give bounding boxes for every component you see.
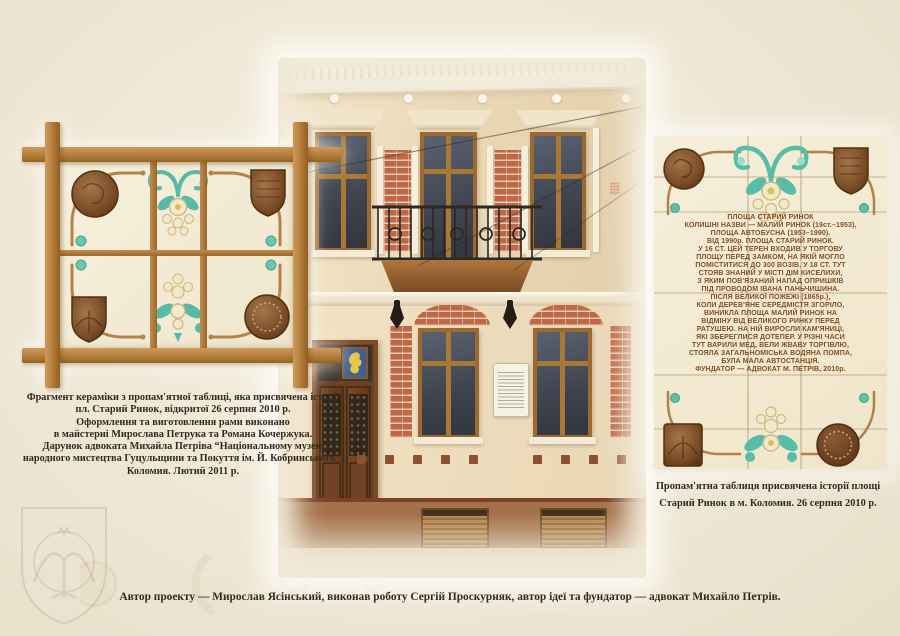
plaque-text-line: ПЛОЩА СТАРИЙ РИНОК — [658, 214, 883, 222]
caption-line: Старий Ринок в м. Коломия. 26 серпня 201… — [638, 496, 898, 513]
plaque-text-line: СТОЯЛА ЗАГАЛЬНОМІСЬКА ВОДЯНА ПОМПА, — [658, 350, 883, 358]
plaque-text-line: ВІДМІНУ ВІД ВЕЛИКОГО РИНКУ ПЕРЕД — [658, 318, 883, 326]
plaque-text-line: ФУНДАТОР — АДВОКАТ М. ПЕТРІВ, 2010р. — [658, 366, 883, 374]
plaque-text-line: ПЛОЩУ ПЕРЕД ЗАМКОМ, НА ЯКІЙ МОГЛО — [658, 254, 883, 262]
caption-line: Автор проекту — Мирослав Ясінський, вико… — [0, 590, 900, 604]
plaque-text-line: ТУТ ВАРИЛИ МЕД, ВЕЛИ ЖВАВУ ТОРГІВЛЮ, — [658, 342, 883, 350]
page: ПЛОЩА СТАРИЙ РИНОК КОЛИШНІ НАЗВИ — МАЛИЙ… — [0, 0, 900, 636]
caption-line: Коломия. Лютий 2011 р. — [16, 466, 350, 478]
plaque-text-block: ПЛОЩА СТАРИЙ РИНОК КОЛИШНІ НАЗВИ — МАЛИЙ… — [658, 214, 883, 374]
right-figure-caption: Пропам'ятна таблиця присвячена історії п… — [638, 479, 898, 512]
plaque-text-line: ВИНИКЛА ПЛОЩА МАЛИЙ РИНОК НА — [658, 310, 883, 318]
caption-line: Оформлення та виготовлення рами виконано — [16, 417, 350, 429]
memorial-plaque: ПЛОЩА СТАРИЙ РИНОК КОЛИШНІ НАЗВИ — МАЛИЙ… — [654, 136, 887, 469]
plaque-text-line: БУЛА МАЛА АВТОСТАНЦІЯ. — [658, 358, 883, 366]
plaque-text-line: СТОЯВ ЗНАНИЙ У МІСТІ ДІМ КИСЕЛИХИ, — [658, 270, 883, 278]
plaque-text-line: ПІД ПРОВОДОМ ІВАНА ПАНЬЧИШИНА. — [658, 286, 883, 294]
left-figure-caption: Фрагмент кераміки з пропам'ятної таблиці… — [16, 392, 350, 478]
caption-line: пл. Старий Ринок, відкритої 26 серпня 20… — [16, 404, 350, 416]
plaque-text-line: КОЛИШНІ НАЗВИ — МАЛИЙ РИНОК (19ст.–1953)… — [658, 222, 883, 230]
plaque-text-line: З ЯКИМ ПОВ'ЯЗАНИЙ НАПАД ОПРИШКІВ — [658, 278, 883, 286]
caption-line: в майстерні Мирослава Петрука та Романа … — [16, 429, 350, 441]
plaque-text-line: ПОМІСТИТИСЯ ДО 300 ВОЗІВ. У 18 СТ. ТУТ — [658, 262, 883, 270]
caption-line: Фрагмент кераміки з пропам'ятної таблиці… — [16, 392, 350, 404]
plaque-text-line: РАТУШЕЮ. НА НІЙ ВИРОСЛИ КАМ'ЯНИЦІ, — [658, 326, 883, 334]
ceramic-panel — [59, 161, 293, 348]
caption-line: народного мистецтва Гуцульщини та Покутт… — [16, 453, 350, 465]
wood-frame-beam-right — [293, 122, 308, 388]
plaque-text-line: КОЛИ ДЕРЕВ'ЯНЕ СЕРЕДМІСТЯ ЗГОРІЛО, — [658, 302, 883, 310]
wood-divider — [59, 250, 293, 256]
plaque-text-line: ЯКІ ЗБЕРЕГЛИСЯ ДОТЕПЕР. У РІЗНІ ЧАСИ — [658, 334, 883, 342]
plaque-text-line: ПІСЛЯ ВЕЛИКОЇ ПОЖЕЖІ (1865р.), — [658, 294, 883, 302]
framed-ceramic-fragment — [22, 95, 344, 390]
caption-line: Пропам'ятна таблиця присвячена історії п… — [638, 479, 898, 496]
plaque-text-line: ПЛОЩА АВТОБУСНА (1953–1990). — [658, 230, 883, 238]
plaque-text-line: ВІД 1990р. ПЛОЩА СТАРИЙ РИНОК. — [658, 238, 883, 246]
caption-line: Дарунок адвоката Михайла Петріва “Націон… — [16, 441, 350, 453]
plaque-text-line: У 16 СТ. ЦЕЙ ТЕРЕН ВХОДИВ У ТОРГОВУ — [658, 246, 883, 254]
wood-frame-beam-left — [45, 122, 60, 388]
bottom-caption: Автор проекту — Мирослав Ясінський, вико… — [0, 590, 900, 604]
